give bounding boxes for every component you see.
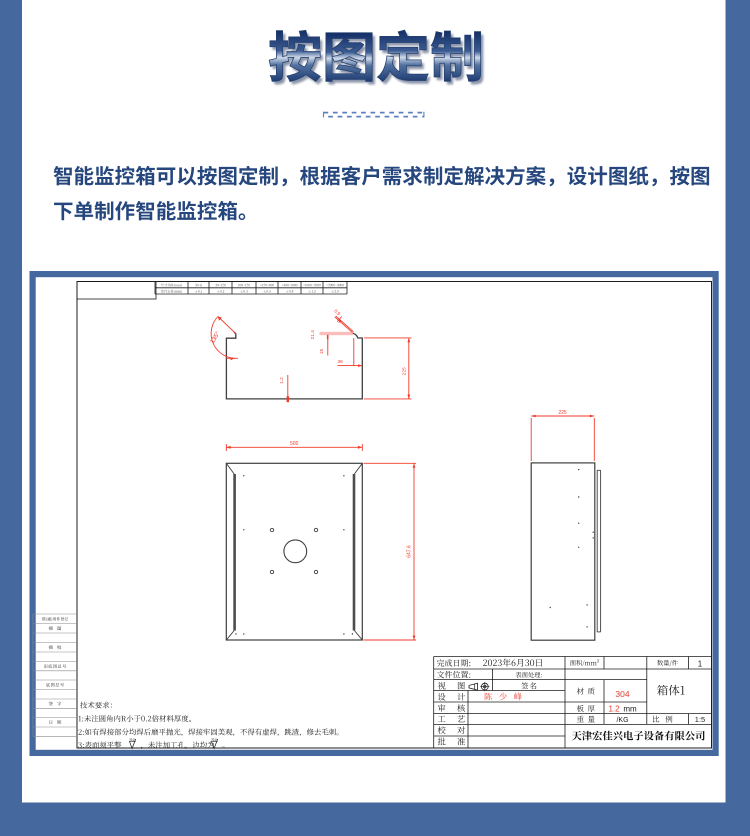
svg-text:500: 500 [290, 441, 299, 447]
svg-text:647.6: 647.6 [407, 545, 413, 558]
svg-text:36: 36 [338, 359, 344, 365]
svg-text:225: 225 [402, 367, 408, 375]
svg-text:mm: mm [623, 705, 637, 714]
svg-text:/KG: /KG [616, 717, 628, 724]
svg-text:1:5: 1:5 [695, 715, 705, 724]
svg-text:1.2: 1.2 [279, 377, 285, 384]
svg-text:21.4: 21.4 [310, 330, 316, 340]
svg-text:225: 225 [558, 410, 567, 416]
svg-text:1.2: 1.2 [608, 705, 620, 714]
svg-text:304: 304 [615, 689, 629, 699]
svg-text:15: 15 [319, 349, 325, 355]
svg-text:1: 1 [698, 659, 703, 668]
